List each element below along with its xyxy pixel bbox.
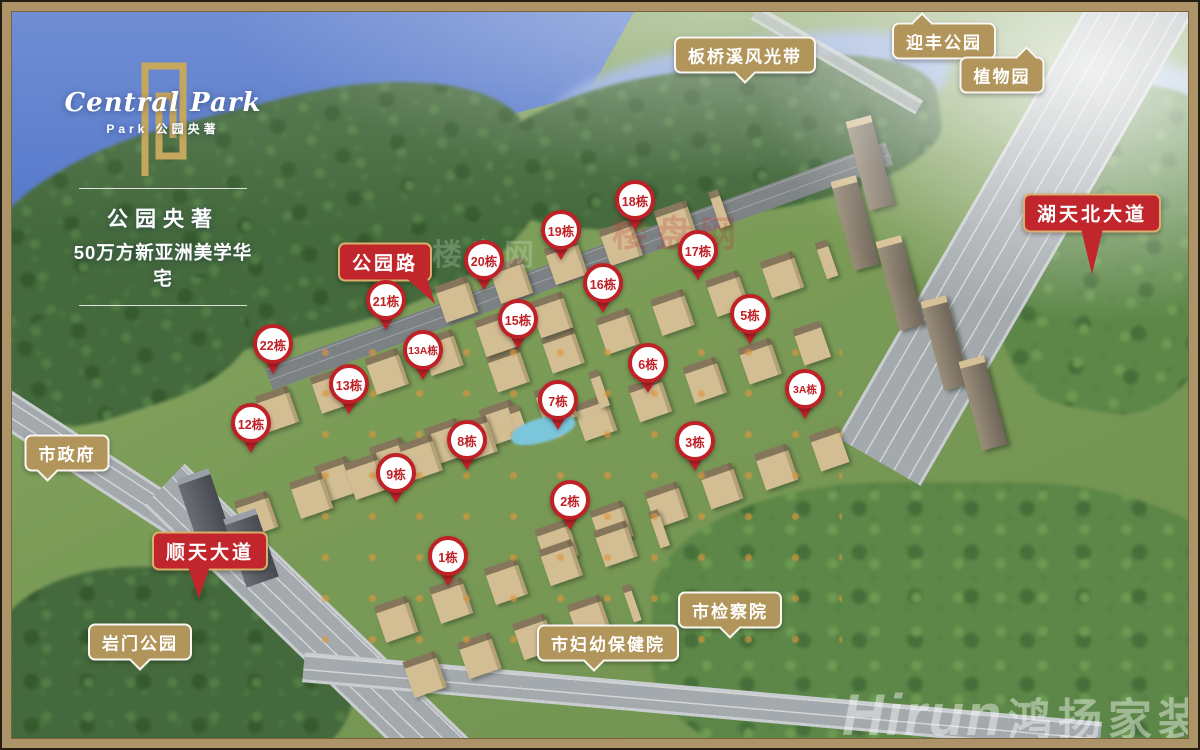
building-pin-20[interactable]: 20栋 <box>460 240 508 290</box>
pin-label: 21栋 <box>373 291 399 310</box>
pin-bubble: 9栋 <box>376 453 416 493</box>
building-pin-5[interactable]: 5栋 <box>726 294 774 344</box>
pin-label: 7栋 <box>548 391 567 410</box>
building-pin-18[interactable]: 18栋 <box>611 180 659 230</box>
pin-label: 17栋 <box>685 241 711 260</box>
pin-label: 16栋 <box>590 274 616 293</box>
pin-bubble: 7栋 <box>538 380 578 420</box>
pin-label: 1栋 <box>438 547 457 566</box>
pin-label: 6栋 <box>638 354 657 373</box>
pin-label: 3栋 <box>685 432 704 451</box>
pin-bubble: 21栋 <box>366 280 406 320</box>
building-pin-3A[interactable]: 3A栋 <box>781 369 829 419</box>
pin-bubble: 15栋 <box>498 299 538 339</box>
pin-bubble: 5栋 <box>730 294 770 334</box>
pin-label: 9栋 <box>386 464 405 483</box>
pin-bubble: 20栋 <box>464 240 504 280</box>
pin-bubble: 17栋 <box>678 230 718 270</box>
logo-script-text: Central Park <box>46 88 280 118</box>
pin-bubble: 2栋 <box>550 480 590 520</box>
label-botanical-garden[interactable]: 植物园 <box>960 57 1045 94</box>
building-pin-21[interactable]: 21栋 <box>362 280 410 330</box>
pin-label: 13A栋 <box>408 343 438 358</box>
building-pin-15[interactable]: 15栋 <box>494 299 542 349</box>
building-pin-8[interactable]: 8栋 <box>443 420 491 470</box>
label-text: 湖天北大道 <box>1037 205 1147 226</box>
label-text: 顺天大道 <box>166 543 254 564</box>
building-pin-16[interactable]: 16栋 <box>579 263 627 313</box>
divider <box>79 188 247 189</box>
building-pin-2[interactable]: 2栋 <box>546 480 594 530</box>
pin-bubble: 22栋 <box>253 324 293 364</box>
label-yingfeng-park[interactable]: 迎丰公园 <box>892 23 996 60</box>
building-pin-1[interactable]: 1栋 <box>424 536 472 586</box>
label-text: 市政府 <box>39 446 96 465</box>
pin-label: 22栋 <box>260 335 286 354</box>
label-city-hall[interactable]: 市政府 <box>25 435 110 472</box>
pin-label: 20栋 <box>471 251 497 270</box>
watermark-brand-en: Hirun <box>842 683 1003 748</box>
pin-label: 12栋 <box>238 414 264 433</box>
pin-label: 3A栋 <box>793 382 817 397</box>
building-pin-3[interactable]: 3栋 <box>671 421 719 471</box>
label-text: 市检察院 <box>692 603 768 622</box>
label-procuratorate[interactable]: 市检察院 <box>678 592 782 629</box>
building-pin-13A[interactable]: 13A栋 <box>399 330 447 380</box>
building-pin-17[interactable]: 17栋 <box>674 230 722 280</box>
building-pin-19[interactable]: 19栋 <box>537 210 585 260</box>
pin-label: 5栋 <box>740 305 759 324</box>
label-text: 板桥溪风光带 <box>688 48 802 67</box>
label-yanmen-park[interactable]: 岩门公园 <box>88 624 192 661</box>
label-text: 公园路 <box>352 254 418 275</box>
pin-bubble: 3栋 <box>675 421 715 461</box>
logo-sub-text: Park 公园央著 <box>68 120 258 137</box>
label-hutianbei-avenue[interactable]: 湖天北大道 <box>1023 194 1161 233</box>
pin-bubble: 13栋 <box>329 364 369 404</box>
pin-bubble: 1栋 <box>428 536 468 576</box>
project-logo-block: Central Park Park 公园央著 公园央著 50万方新亚洲美学华宅 <box>68 58 258 316</box>
building-pin-7[interactable]: 7栋 <box>534 380 582 430</box>
building-pin-6[interactable]: 6栋 <box>624 343 672 393</box>
aerial-masterplan-image: Central Park Park 公园央著 公园央著 50万方新亚洲美学华宅 … <box>0 0 1200 750</box>
label-banqiaoxi-greenway[interactable]: 板桥溪风光带 <box>674 37 816 74</box>
pin-bubble: 3A栋 <box>785 369 825 409</box>
pin-label: 8栋 <box>457 431 476 450</box>
pin-label: 15栋 <box>505 310 531 329</box>
project-slogan: 50万方新亚洲美学华宅 <box>68 239 258 291</box>
label-text: 市妇幼保健院 <box>551 636 665 655</box>
pin-label: 18栋 <box>622 191 648 210</box>
building-pin-9[interactable]: 9栋 <box>372 453 420 503</box>
label-text: 岩门公园 <box>102 635 178 654</box>
label-maternity-hospital[interactable]: 市妇幼保健院 <box>537 625 679 662</box>
watermark-brand-cn: 鸿扬家装 <box>1008 696 1200 745</box>
pin-label: 2栋 <box>560 491 579 510</box>
project-name: 公园央著 <box>68 203 258 233</box>
logo-art: Central Park Park 公园央著 <box>68 58 258 178</box>
pin-bubble: 6栋 <box>628 343 668 383</box>
pin-bubble: 19栋 <box>541 210 581 250</box>
pin-bubble: 16栋 <box>583 263 623 303</box>
building-pin-12[interactable]: 12栋 <box>227 403 275 453</box>
label-text: 迎丰公园 <box>906 34 982 53</box>
label-text: 植物园 <box>974 68 1031 87</box>
label-shuntian-avenue[interactable]: 顺天大道 <box>152 532 268 571</box>
pin-bubble: 12栋 <box>231 403 271 443</box>
divider <box>79 305 247 306</box>
pin-bubble: 13A栋 <box>403 330 443 370</box>
label-gongyuan-road[interactable]: 公园路 <box>338 243 432 282</box>
pin-label: 13栋 <box>336 375 362 394</box>
highrise-tower <box>876 235 925 331</box>
building-pin-13[interactable]: 13栋 <box>325 364 373 414</box>
pin-label: 19栋 <box>548 221 574 240</box>
hirun-brand-watermark: Hirun 鸿扬家装 <box>842 682 1200 749</box>
maze-square-logo-icon <box>131 58 195 178</box>
building-pin-22[interactable]: 22栋 <box>249 324 297 374</box>
pin-bubble: 18栋 <box>615 180 655 220</box>
pin-bubble: 8栋 <box>447 420 487 460</box>
